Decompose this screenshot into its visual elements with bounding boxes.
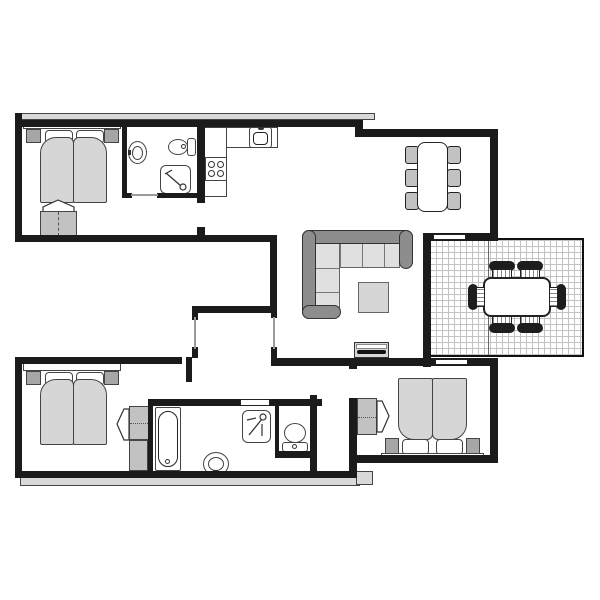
dining-table [417,142,448,212]
headboard [23,363,121,371]
cushion-divider [315,268,339,269]
wall-segment [148,399,240,406]
dining-chair [447,169,461,187]
burner-icon [217,161,224,168]
shower-head-icon [160,165,191,194]
sofa-cushions-left [314,241,340,313]
nightstand [466,438,480,454]
coffee-table [358,282,389,313]
sliding-door-terrace-bottom [435,359,468,365]
toilet-flush-icon [292,444,297,449]
wall-segment [349,358,357,369]
tv-cabinet-top [356,344,387,349]
wall-segment [349,398,357,458]
wall-segment [423,233,431,367]
wall-segment [197,120,205,203]
toilet-tank [187,138,196,156]
mattress-right [432,378,467,440]
cooktop [205,157,227,181]
wardrobe-door-arrow-icon [116,408,130,441]
terrace-edge-bottom [430,355,584,357]
tv-screen-icon [357,350,386,354]
mattress-right [73,379,107,445]
wall-segment [148,399,153,472]
kitchen-sink-basin [253,132,268,145]
wardrobe-split-line [358,417,376,418]
sofa-arm-right [399,230,413,269]
wall-segment [15,235,277,242]
sliding-door-terrace-top [433,234,466,240]
wall-segment [15,357,22,478]
washbasin-bowl [132,146,143,160]
nightstand [26,371,41,385]
bathtub-drain-icon [165,459,170,464]
nightstand [104,371,119,385]
outdoor-chair-seat [492,269,512,278]
entrance-door [194,317,196,349]
wall-segment [15,357,182,364]
wall-segment [490,358,498,463]
shower-head-icon [242,410,271,443]
mattress-left [40,379,74,445]
wardrobe-door-arrow-icon [376,400,390,433]
dining-chair [447,192,461,210]
bathroom-door-top [131,194,158,196]
roof-eave-strip [15,113,375,120]
cushion-divider [315,292,339,293]
cushion-divider [362,242,363,267]
nightstand [104,129,119,143]
wall-segment [186,357,192,382]
burner-icon [208,161,215,168]
outdoor-chair-back [489,323,515,333]
toilet-bowl [284,423,306,443]
sofa-arm-bottom [302,305,341,319]
wall-segment [275,405,279,453]
toilet-flush-icon [181,144,186,149]
wall-segment [310,395,317,472]
floor-plan-canvas [0,0,600,600]
wall-segment [122,120,127,198]
dining-chair [447,146,461,164]
terrace-edge-right [582,238,584,357]
wardrobe-split-line [58,212,59,236]
entry-pavement-step [356,471,373,485]
washbasin-tap-icon [128,150,131,155]
nightstand [385,438,399,454]
hall-opening [273,317,275,349]
burner-icon [217,170,224,177]
sofa-back-top [302,230,413,244]
burner-icon [208,170,215,177]
nightstand [26,129,41,143]
wall-segment [197,227,205,241]
shower-door-marker [240,399,270,406]
outdoor-chair-back [517,323,543,333]
mattress-left [398,378,433,440]
cabinet [129,440,148,471]
wall-segment [15,120,362,127]
wall-segment [15,113,22,242]
mattress-left [40,137,74,203]
wall-segment [490,129,498,241]
wall-segment [355,129,498,137]
cushion-divider [340,242,341,267]
wall-segment [349,455,498,463]
wardrobe-split-line [130,423,148,424]
outdoor-chair-seat [520,269,540,278]
mattress-right [73,137,107,203]
cushion-divider [384,242,385,267]
wall-segment [15,471,356,478]
outdoor-chair-seat [476,287,485,307]
outdoor-chair-seat [549,287,558,307]
wall-segment [270,242,277,313]
entry-pavement [20,477,360,486]
wall-segment [192,306,277,313]
wall-segment [157,193,204,198]
washbasin-bowl [208,457,224,471]
outdoor-dining-table [483,277,551,317]
